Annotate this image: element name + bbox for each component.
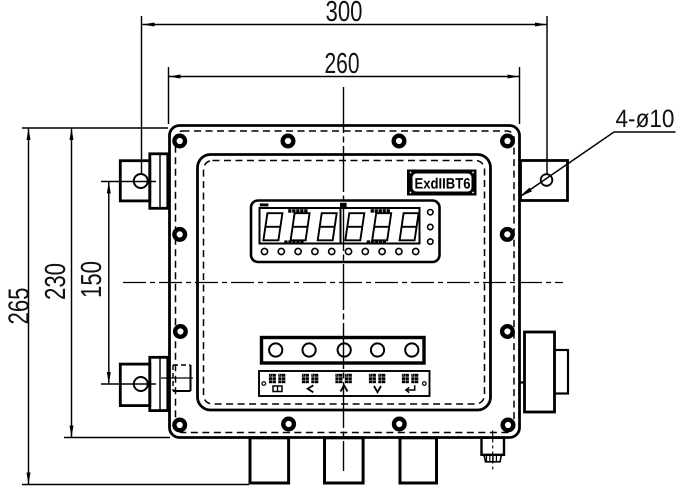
svg-text:230: 230 xyxy=(40,263,72,300)
svg-text:4-ø10: 4-ø10 xyxy=(616,105,675,133)
svg-text:265: 265 xyxy=(4,288,36,325)
svg-text:260: 260 xyxy=(325,48,360,80)
svg-text:ExdIIBT6: ExdIIBT6 xyxy=(415,176,471,193)
svg-text:300: 300 xyxy=(326,0,363,28)
svg-text:150: 150 xyxy=(76,261,108,298)
